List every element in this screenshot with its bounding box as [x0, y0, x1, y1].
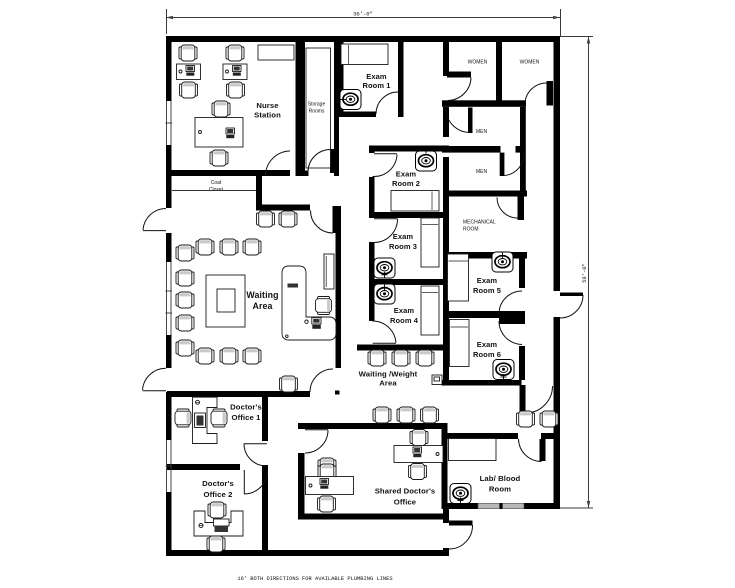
- svg-text:16' BOTH DIRECTIONS FOR AVAILA: 16' BOTH DIRECTIONS FOR AVAILABLE PLUMBI…: [237, 576, 392, 582]
- svg-text:Closet: Closet: [209, 187, 224, 193]
- svg-text:WOMEN: WOMEN: [520, 60, 540, 66]
- svg-text:58'-0": 58'-0": [581, 263, 588, 283]
- svg-text:Station: Station: [254, 111, 281, 120]
- svg-text:Room 4: Room 4: [390, 316, 419, 325]
- svg-text:Office: Office: [394, 498, 417, 507]
- svg-text:36'-0": 36'-0": [353, 11, 373, 18]
- svg-text:Area: Area: [253, 301, 273, 311]
- svg-text:Room 6: Room 6: [473, 350, 501, 359]
- svg-text:Storage: Storage: [308, 102, 326, 108]
- svg-text:Waiting /Weight: Waiting /Weight: [359, 370, 418, 379]
- svg-text:Room 5: Room 5: [473, 286, 501, 295]
- svg-text:Exam: Exam: [477, 276, 498, 285]
- svg-text:MEN: MEN: [476, 129, 488, 135]
- svg-text:Exam: Exam: [477, 340, 498, 349]
- svg-text:Exam: Exam: [394, 306, 415, 315]
- svg-text:Nurse: Nurse: [256, 101, 279, 110]
- svg-text:MEN: MEN: [476, 169, 488, 175]
- svg-text:Rooms: Rooms: [309, 109, 325, 115]
- svg-text:Room 3: Room 3: [389, 242, 417, 251]
- svg-text:Room 2: Room 2: [392, 179, 420, 188]
- svg-text:Area: Area: [379, 379, 397, 388]
- svg-text:Waiting: Waiting: [246, 290, 278, 300]
- svg-text:Office 1: Office 1: [232, 413, 262, 422]
- svg-text:MECHANICAL: MECHANICAL: [463, 220, 496, 226]
- svg-text:Room 1: Room 1: [362, 81, 390, 90]
- svg-text:Exam: Exam: [366, 72, 387, 81]
- svg-text:Office 2: Office 2: [204, 490, 233, 499]
- svg-text:ROOM: ROOM: [463, 227, 479, 233]
- svg-text:Coat: Coat: [211, 180, 222, 186]
- svg-text:Exam: Exam: [396, 170, 417, 179]
- svg-text:Exam: Exam: [393, 232, 414, 241]
- svg-text:Lab/ Blood: Lab/ Blood: [480, 474, 521, 483]
- svg-text:Doctor's: Doctor's: [230, 403, 262, 412]
- svg-text:Doctor's: Doctor's: [202, 479, 234, 488]
- svg-text:Shared Doctor's: Shared Doctor's: [375, 487, 436, 496]
- svg-text:Room: Room: [489, 485, 511, 494]
- svg-text:WOMEN: WOMEN: [468, 60, 488, 66]
